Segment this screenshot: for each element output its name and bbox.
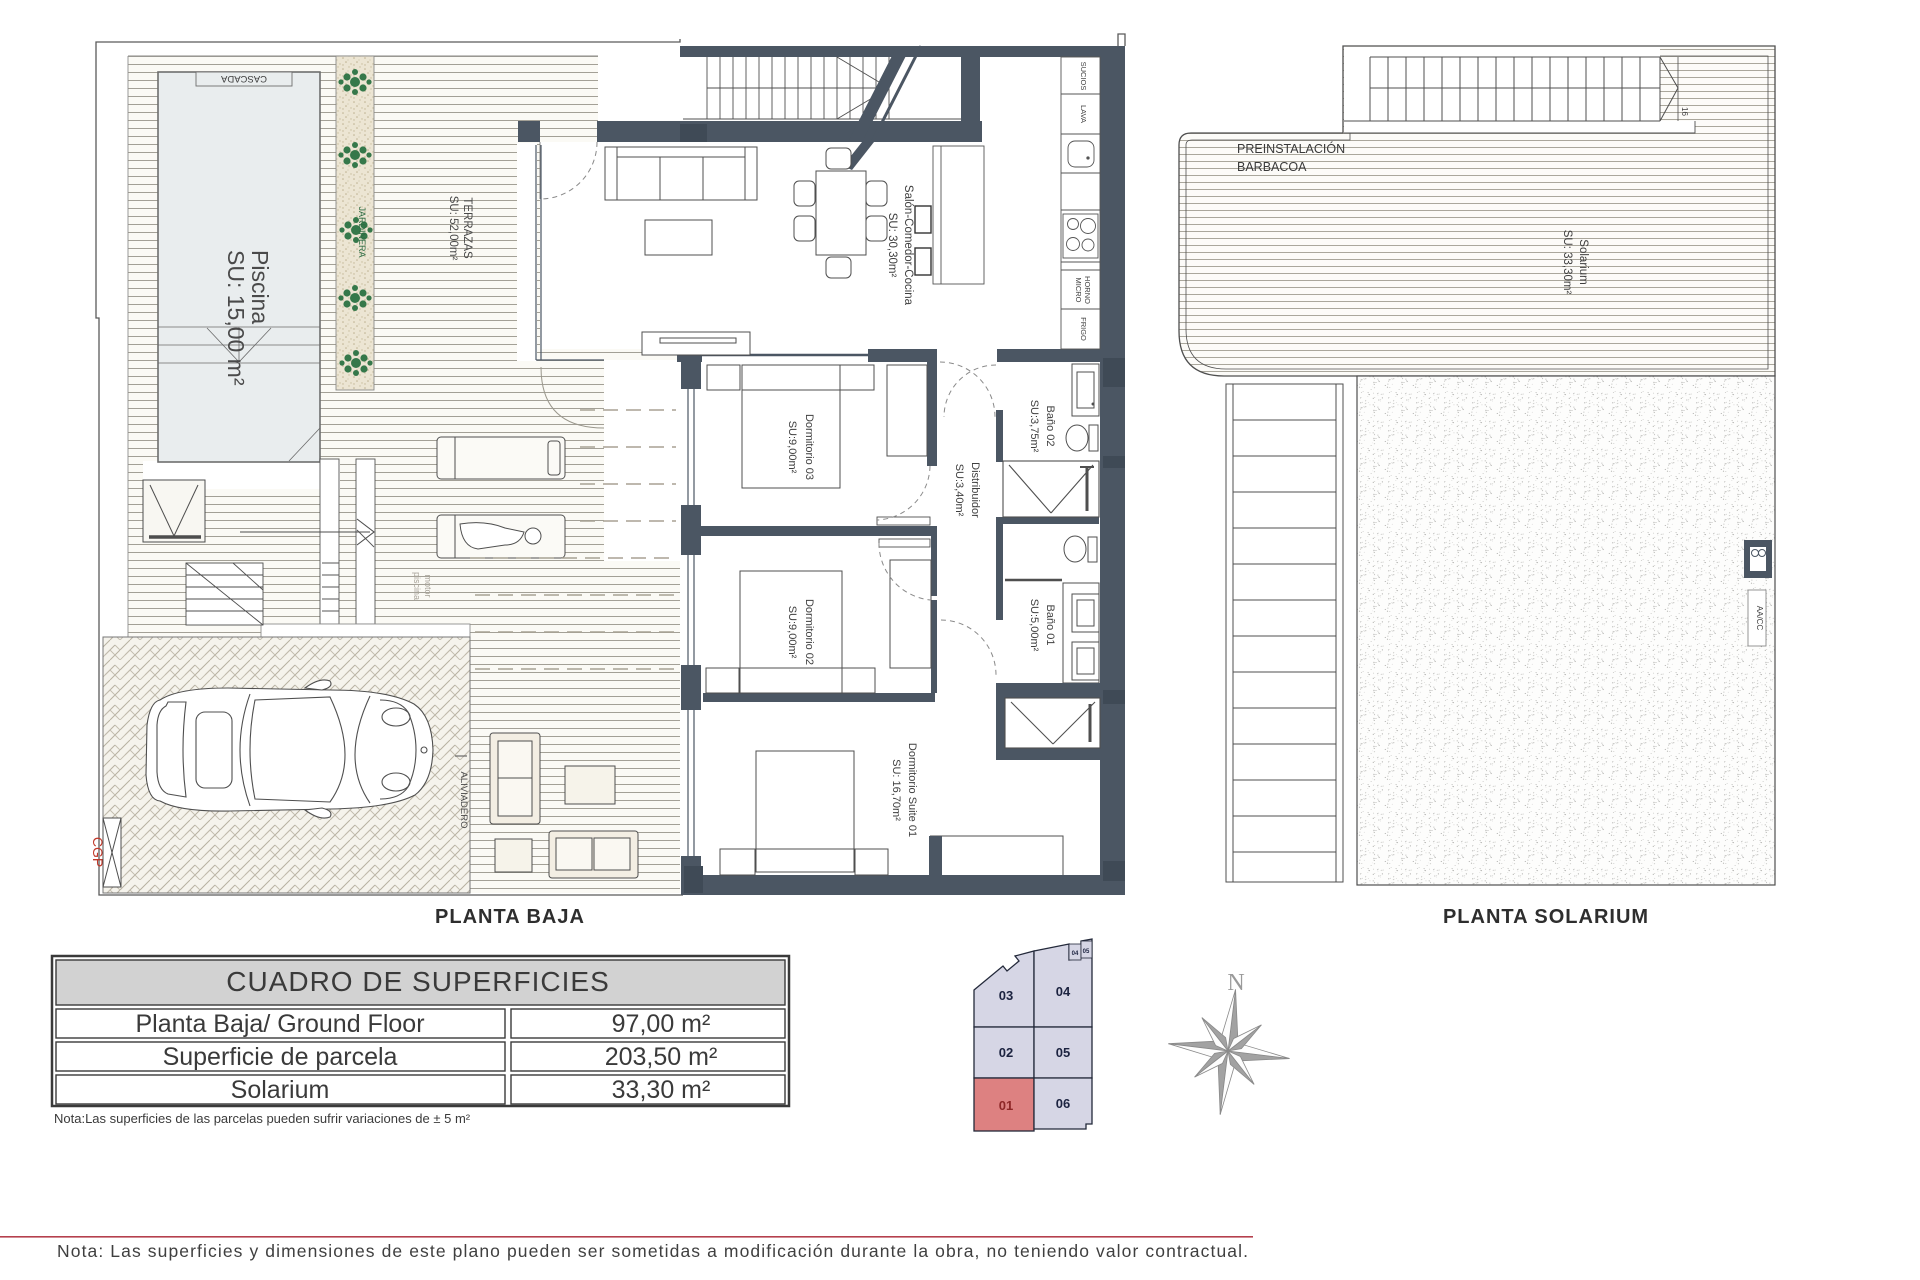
svg-text:ALIVIADERO: ALIVIADERO xyxy=(458,771,469,828)
svg-text:Nota: Las superficies y dimens: Nota: Las superficies y dimensiones de e… xyxy=(57,1241,1249,1261)
svg-text:TERRAZAS: TERRAZAS xyxy=(461,197,473,259)
svg-text:33,30 m²: 33,30 m² xyxy=(612,1076,711,1104)
svg-text:N: N xyxy=(1227,970,1244,996)
svg-text:FRIGO: FRIGO xyxy=(1079,317,1088,341)
svg-text:JARDINERA: JARDINERA xyxy=(357,206,367,257)
svg-text:05: 05 xyxy=(1083,949,1090,955)
svg-text:Baño 02: Baño 02 xyxy=(1044,406,1056,447)
svg-text:Distribuidor: Distribuidor xyxy=(969,462,981,518)
svg-text:01: 01 xyxy=(999,1098,1013,1113)
svg-text:Dormitorio 03: Dormitorio 03 xyxy=(803,414,815,480)
svg-text:Piscina: Piscina xyxy=(247,250,273,324)
svg-text:AA/CC: AA/CC xyxy=(1755,606,1764,631)
svg-text:Solarium: Solarium xyxy=(1577,239,1589,284)
svg-text:SU:9,00m²: SU:9,00m² xyxy=(786,421,798,474)
svg-text:LAVA: LAVA xyxy=(1079,105,1088,123)
svg-text:PLANTA SOLARIUM: PLANTA SOLARIUM xyxy=(1443,906,1649,928)
svg-text:Dormitorio 02: Dormitorio 02 xyxy=(803,599,815,665)
svg-text:SU:3,75m²: SU:3,75m² xyxy=(1028,400,1040,453)
svg-text:Planta Baja/ Ground Floor: Planta Baja/ Ground Floor xyxy=(135,1010,424,1038)
svg-text:03: 03 xyxy=(999,988,1013,1003)
svg-text:97,00 m²: 97,00 m² xyxy=(612,1010,711,1038)
svg-text:HORNO: HORNO xyxy=(1083,276,1092,304)
svg-text:Salón-Comedor-Cocina: Salón-Comedor-Cocina xyxy=(902,185,914,306)
svg-text:CUADRO DE SUPERFICIES: CUADRO DE SUPERFICIES xyxy=(226,966,610,997)
svg-text:Nota:Las superficies de las pa: Nota:Las superficies de las parcelas pue… xyxy=(54,1111,471,1126)
svg-text:16: 16 xyxy=(1680,107,1689,116)
svg-text:Dormitorio Suite 01: Dormitorio Suite 01 xyxy=(906,743,918,837)
svg-text:CASCADA: CASCADA xyxy=(220,73,267,84)
svg-text:Superficie de parcela: Superficie de parcela xyxy=(163,1043,398,1071)
svg-text:SU:5,00m²: SU:5,00m² xyxy=(1028,599,1040,652)
svg-text:02: 02 xyxy=(999,1045,1013,1060)
svg-text:SU: 16,70m²: SU: 16,70m² xyxy=(890,759,902,821)
svg-text:04: 04 xyxy=(1056,984,1071,999)
svg-text:SUCIOS: SUCIOS xyxy=(1079,62,1088,91)
svg-text:SU: 33,30m²: SU: 33,30m² xyxy=(1561,230,1573,295)
svg-text:piscina: piscina xyxy=(412,572,422,600)
svg-text:04: 04 xyxy=(1072,951,1079,957)
svg-text:Baño 01: Baño 01 xyxy=(1044,605,1056,646)
svg-text:203,50 m²: 203,50 m² xyxy=(605,1043,718,1071)
svg-text:SU: 30,30m²: SU: 30,30m² xyxy=(886,213,898,278)
svg-text:05: 05 xyxy=(1056,1045,1070,1060)
svg-text:Solarium: Solarium xyxy=(231,1076,330,1104)
svg-text:BARBACOA: BARBACOA xyxy=(1237,160,1307,174)
svg-text:PREINSTALACIÓN: PREINSTALACIÓN xyxy=(1237,141,1345,156)
svg-text:SU: 52,00m²: SU: 52,00m² xyxy=(447,196,459,261)
svg-text:SU:9,00m²: SU:9,00m² xyxy=(786,606,798,659)
svg-text:MICRO: MICRO xyxy=(1074,278,1083,303)
svg-text:CGP: CGP xyxy=(90,837,106,867)
svg-text:PLANTA BAJA: PLANTA BAJA xyxy=(435,906,585,928)
svg-text:SU:3,40m²: SU:3,40m² xyxy=(953,464,965,517)
svg-text:motor: motor xyxy=(423,574,433,597)
svg-text:SU: 15,00 m²: SU: 15,00 m² xyxy=(223,250,249,386)
svg-text:06: 06 xyxy=(1056,1096,1070,1111)
